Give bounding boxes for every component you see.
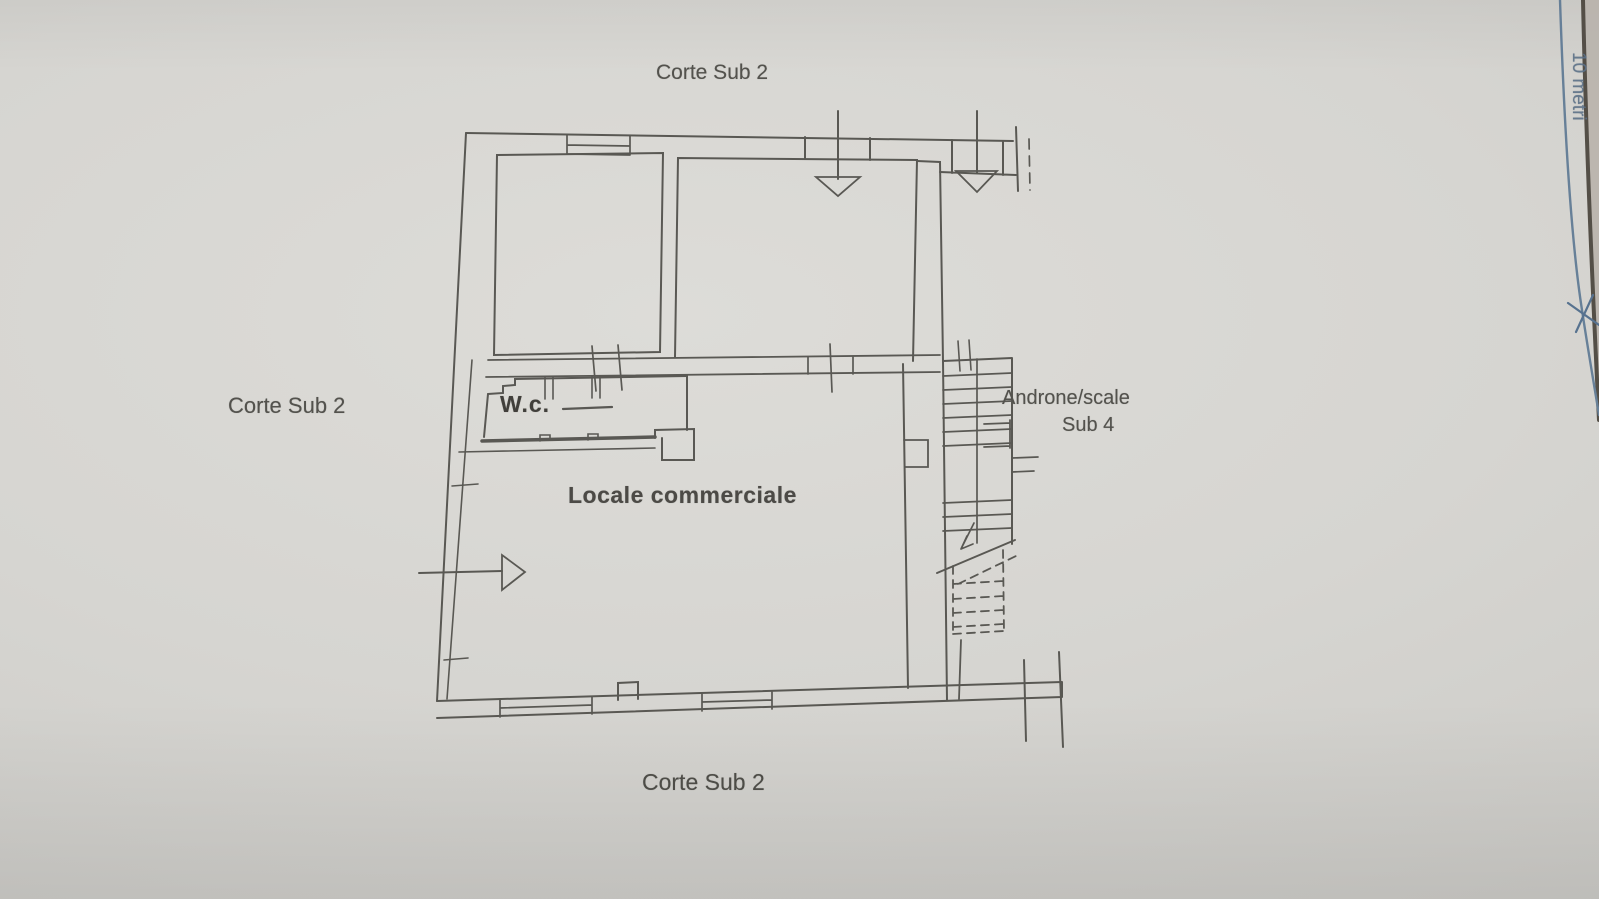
locale-commerciale-room [419,364,928,688]
bottom-wall-pillar [618,682,638,700]
top-openings [567,111,1030,361]
entrance-arrow-left-head [502,555,525,590]
locale-right-notch [904,440,928,467]
right-gate-dashed-bar [1029,139,1030,190]
middle-room-outline [675,158,917,361]
stair-direction-arrow [961,523,974,549]
stair-street-wall [917,161,943,361]
entrance-arrow-left-line [419,571,502,573]
locale-top-wall-thick [482,437,655,441]
top-wall [466,133,1013,141]
wc-left-wall [484,394,488,437]
stair-top-ticks [958,340,971,371]
label-sub-4: Sub 4 [1062,414,1114,437]
floorplan-drawing [0,0,1599,899]
cross-wall-double [486,355,940,377]
stair-bottom-wall [959,640,961,699]
scanned-floorplan-photo: Corte Sub 2 Corte Sub 2 Corte Sub 2 W.c.… [0,0,1599,899]
bottom-gate-marks [1024,652,1063,747]
androne-railing-ticks [1012,457,1038,472]
outer-walls [437,133,1062,718]
label-locale-commerciale: Locale commerciale [568,482,797,509]
label-corte-sub2-left: Corte Sub 2 [228,393,345,419]
locale-top-hook [655,429,694,460]
wc-door-slots [545,376,600,399]
label-androne-scale: Androne/scale [1002,387,1130,410]
label-wc: W.c. [500,391,550,418]
wc-dash-line [563,407,612,409]
label-corte-sub2-bottom: Corte Sub 2 [642,769,765,796]
label-edge-ruler: 10 metri [1567,52,1589,121]
label-corte-sub2-top: Corte Sub 2 [656,61,768,85]
top-window [567,135,630,155]
locale-right-wall [903,364,908,688]
courtyard-rooms [486,153,940,392]
cross-wall-door-jambs [808,344,853,392]
left-wall-inner [447,360,472,699]
left-wall-outer [437,133,466,701]
left-room-outline [494,153,663,355]
right-gate-end-bar [1016,127,1018,191]
locale-top-wall-thin [459,448,655,452]
